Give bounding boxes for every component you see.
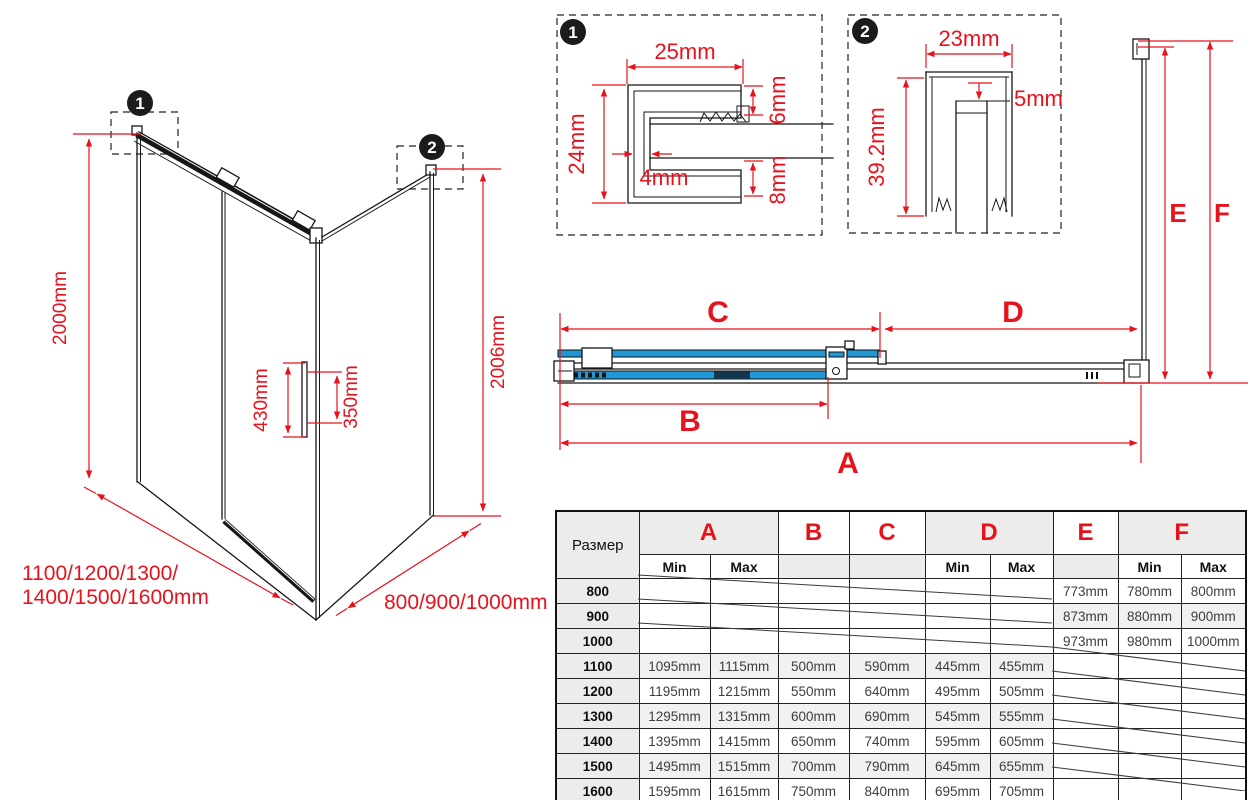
value-cell: 605mm (990, 729, 1053, 754)
value-cell: 740mm (849, 729, 925, 754)
detail1-dimensions: 25mm 24mm 4mm 6mm 8mm (564, 39, 790, 204)
c-subheader-empty (849, 555, 925, 579)
table-row: 1000973mm980mm1000mm (556, 629, 1246, 654)
value-cell (1181, 754, 1246, 779)
col-c-header: C (849, 511, 925, 555)
size-cell: 1300 (556, 704, 639, 729)
wall-bracket (582, 348, 612, 368)
door-handle (302, 362, 307, 437)
value-cell: 1515mm (710, 754, 778, 779)
value-cell: 840mm (849, 779, 925, 800)
col-a-header: A (639, 511, 778, 555)
value-cell (1118, 679, 1181, 704)
size-cell: 1000 (556, 629, 639, 654)
value-cell (849, 629, 925, 654)
size-cell: 1200 (556, 679, 639, 704)
iso-view: 1 2 2000mm 2006mm 430mm 350mm 1 (22, 90, 547, 620)
value-cell: 445mm (925, 654, 990, 679)
table-row: 800773mm780mm800mm (556, 579, 1246, 604)
value-cell: 780mm (1118, 579, 1181, 604)
detail1-top-dim: 25mm (654, 39, 715, 64)
value-cell: 555mm (990, 704, 1053, 729)
table-row: 11001095mm1115mm500mm590mm445mm455mm (556, 654, 1246, 679)
iso-depth-label: 800/900/1000mm (384, 591, 547, 614)
table-row: 12001195mm1215mm550mm640mm495mm505mm (556, 679, 1246, 704)
value-cell: 690mm (849, 704, 925, 729)
value-cell: 790mm (849, 754, 925, 779)
size-cell: 1400 (556, 729, 639, 754)
value-cell (1118, 754, 1181, 779)
a-max-header: Max (710, 555, 778, 579)
detail1-left-dim: 24mm (564, 113, 589, 174)
value-cell (639, 629, 710, 654)
detail1-right-top-dim: 6mm (765, 76, 790, 125)
detail2-left-dim: 39.2mm (864, 107, 889, 186)
size-table-header: Размер A B C D E F Min Max Min Max Min M… (556, 511, 1246, 579)
detail2-inset-dim: 5mm (1014, 86, 1063, 111)
value-cell (990, 629, 1053, 654)
dim-d-label: D (1002, 296, 1024, 329)
table-row: 13001295mm1315mm600mm690mm545mm555mm (556, 704, 1246, 729)
sliding-glass-door (558, 371, 832, 379)
marker2-number: 2 (427, 138, 436, 157)
size-cell: 800 (556, 579, 639, 604)
value-cell: 545mm (925, 704, 990, 729)
value-cell: 1215mm (710, 679, 778, 704)
dim-b-label: B (679, 405, 701, 438)
value-cell: 1495mm (639, 754, 710, 779)
detail1-number: 1 (568, 23, 577, 42)
iso-height-right-label: 2006mm (488, 315, 509, 389)
value-cell: 550mm (778, 679, 849, 704)
col-b-header: B (778, 511, 849, 555)
value-cell: 595mm (925, 729, 990, 754)
table-row: 16001595mm1615mm750mm840mm695mm705mm (556, 779, 1246, 800)
value-cell (778, 629, 849, 654)
value-cell: 645mm (925, 754, 990, 779)
size-column-header: Размер (556, 511, 639, 579)
value-cell: 1000mm (1181, 629, 1246, 654)
value-cell: 500mm (778, 654, 849, 679)
value-cell (925, 629, 990, 654)
value-cell: 980mm (1118, 629, 1181, 654)
value-cell: 1115mm (710, 654, 778, 679)
value-cell (1053, 679, 1118, 704)
value-cell (1181, 779, 1246, 800)
detail-1: 1 25mm 24mm 4mm 6mm (557, 15, 833, 235)
value-cell (1118, 729, 1181, 754)
value-cell: 455mm (990, 654, 1053, 679)
value-cell (925, 604, 990, 629)
b-subheader-empty (778, 555, 849, 579)
value-cell (710, 629, 778, 654)
size-table-wrap: Размер A B C D E F Min Max Min Max Min M… (555, 510, 1245, 800)
d-min-header: Min (925, 555, 990, 579)
detail2-number: 2 (860, 22, 869, 41)
size-cell: 1600 (556, 779, 639, 800)
value-cell (778, 604, 849, 629)
detail2-top-dim: 23mm (938, 26, 999, 51)
a-min-header: Min (639, 555, 710, 579)
value-cell: 1295mm (639, 704, 710, 729)
value-cell (1181, 729, 1246, 754)
value-cell: 1415mm (710, 729, 778, 754)
value-cell: 1395mm (639, 729, 710, 754)
iso-height-left-label: 2000mm (50, 271, 71, 345)
value-cell (710, 579, 778, 604)
handle-inner-label: 350mm (341, 365, 362, 428)
size-table: Размер A B C D E F Min Max Min Max Min M… (555, 510, 1247, 800)
value-cell (990, 604, 1053, 629)
dim-e-label: E (1169, 198, 1186, 228)
dim-f-label: F (1214, 198, 1230, 228)
detail2-profile (926, 72, 1012, 233)
col-e-header: E (1053, 511, 1118, 555)
value-cell (1053, 729, 1118, 754)
dim-c-label: C (707, 296, 729, 329)
value-cell: 640mm (849, 679, 925, 704)
value-cell (1181, 704, 1246, 729)
value-cell (990, 579, 1053, 604)
value-cell (1053, 654, 1118, 679)
detail1-slot-dim: 4mm (640, 165, 689, 190)
value-cell: 973mm (1053, 629, 1118, 654)
value-cell: 1595mm (639, 779, 710, 800)
value-cell (1118, 704, 1181, 729)
seal-clip (992, 198, 1007, 212)
iso-dimensions: 2000mm 2006mm 430mm 350mm 1100/1200/1300… (22, 134, 547, 616)
value-cell: 655mm (990, 754, 1053, 779)
value-cell: 705mm (990, 779, 1053, 800)
f-max-header: Max (1181, 555, 1246, 579)
handle-outer-label: 430mm (251, 368, 272, 431)
value-cell (778, 579, 849, 604)
value-cell: 1315mm (710, 704, 778, 729)
dim-a-label: A (837, 447, 859, 480)
col-d-header: D (925, 511, 1053, 555)
value-cell: 1615mm (710, 779, 778, 800)
value-cell: 773mm (1053, 579, 1118, 604)
shower-enclosure-dimension-sheet: 1 2 2000mm 2006mm 430mm 350mm 1 (0, 0, 1250, 800)
value-cell: 1195mm (639, 679, 710, 704)
value-cell (1181, 654, 1246, 679)
col-f-header: F (1118, 511, 1246, 555)
value-cell (1118, 779, 1181, 800)
value-cell (1181, 679, 1246, 704)
detail-2: 2 23mm 39.2mm 5m (848, 15, 1063, 233)
value-cell: 873mm (1053, 604, 1118, 629)
value-cell: 505mm (990, 679, 1053, 704)
value-cell: 590mm (849, 654, 925, 679)
marker1-number: 1 (135, 94, 144, 113)
value-cell: 495mm (925, 679, 990, 704)
value-cell: 900mm (1181, 604, 1246, 629)
detail2-dimensions: 23mm 39.2mm 5mm (864, 26, 1063, 216)
value-cell: 1095mm (639, 654, 710, 679)
size-table-body: 800773mm780mm800mm900873mm880mm900mm1000… (556, 579, 1246, 800)
value-cell (639, 579, 710, 604)
table-row: 900873mm880mm900mm (556, 604, 1246, 629)
value-cell: 700mm (778, 754, 849, 779)
iso-frame-lines (132, 126, 436, 620)
value-cell (1053, 754, 1118, 779)
value-cell (1053, 779, 1118, 800)
f-min-header: Min (1118, 555, 1181, 579)
size-cell: 1100 (556, 654, 639, 679)
value-cell: 600mm (778, 704, 849, 729)
value-cell (849, 604, 925, 629)
value-cell (925, 579, 990, 604)
d-max-header: Max (990, 555, 1053, 579)
value-cell (639, 604, 710, 629)
value-cell (710, 604, 778, 629)
size-cell: 1500 (556, 754, 639, 779)
value-cell: 695mm (925, 779, 990, 800)
value-cell: 800mm (1181, 579, 1246, 604)
table-row: 14001395mm1415mm650mm740mm595mm605mm (556, 729, 1246, 754)
e-subheader-empty (1053, 555, 1118, 579)
size-cell: 900 (556, 604, 639, 629)
side-panel-top-profile (1133, 39, 1149, 59)
seal-clip (936, 198, 951, 212)
value-cell: 750mm (778, 779, 849, 800)
value-cell (1053, 704, 1118, 729)
value-cell (1118, 654, 1181, 679)
iso-width-label-line1: 1100/1200/1300/ (22, 562, 178, 585)
corner-bracket (1124, 360, 1149, 383)
value-cell (849, 579, 925, 604)
iso-width-label-line2: 1400/1500/1600mm (22, 586, 209, 609)
table-row: 15001495mm1515mm700mm790mm645mm655mm (556, 754, 1246, 779)
detail1-right-bottom-dim: 8mm (765, 156, 790, 205)
value-cell: 650mm (778, 729, 849, 754)
value-cell: 880mm (1118, 604, 1181, 629)
